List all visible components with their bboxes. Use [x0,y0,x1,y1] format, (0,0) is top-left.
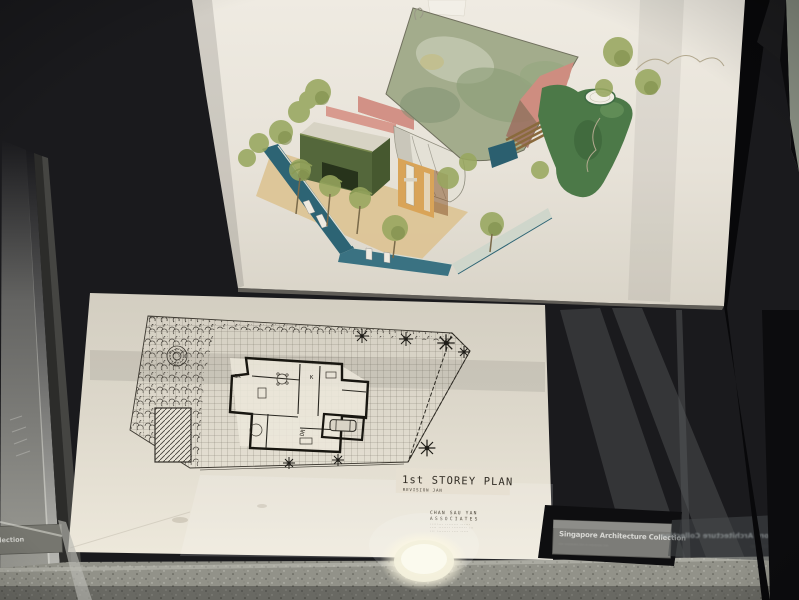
vignette-overlay [0,0,799,600]
photo-display-case: GR K DR 1st STOREY PLAN REVISION JAN CHA [0,0,799,600]
scene-canvas: GR K DR 1st STOREY PLAN REVISION JAN CHA [0,0,799,600]
